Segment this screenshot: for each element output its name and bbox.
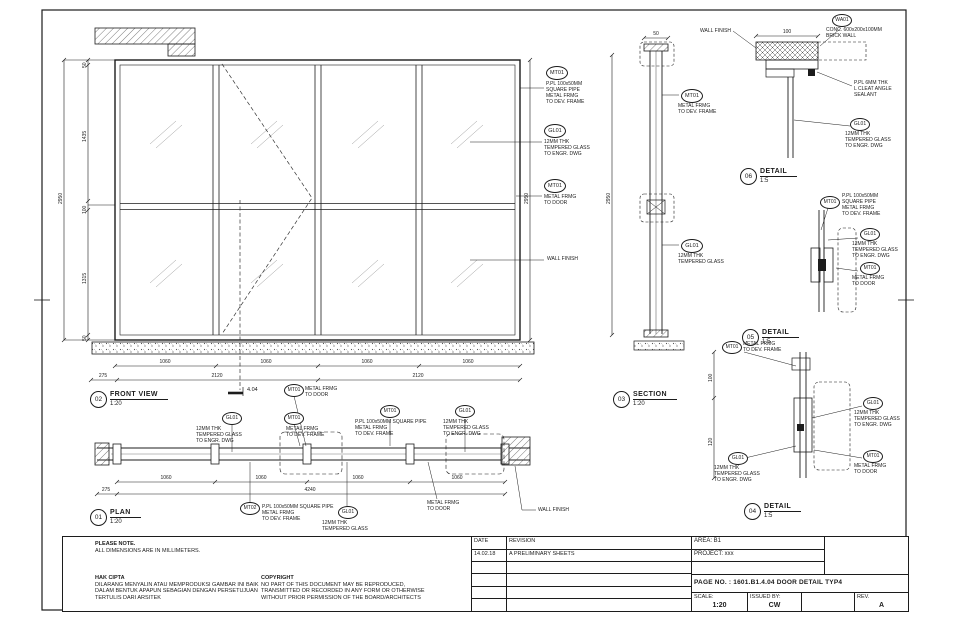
page-number-field: PAGE NO. : 1601.B1.4.04 DOOR DETAIL TYP4 xyxy=(691,574,908,592)
annotation-glass: 12MM THKTEMPERED GLASSTO ENGR. DWG xyxy=(854,410,900,428)
tag-wa01: WA01 xyxy=(832,14,852,27)
view-title-section: 03 SECTION 1:20 xyxy=(613,391,677,408)
view-title-detail05: 05 DETAIL 1:5 xyxy=(742,329,799,346)
revision-row-empty xyxy=(471,586,506,598)
revision-row-empty xyxy=(506,561,691,573)
dim-front-bottom: 1060 xyxy=(462,359,473,365)
tag-gl01: GL01 xyxy=(863,397,883,410)
revision-row-empty xyxy=(506,598,691,611)
annotation-mt01-frame: P.PL 100x50MMSQUARE PIPE METAL FRMGTO DE… xyxy=(842,193,880,217)
rev-field: REV. A xyxy=(854,592,908,611)
dim-plan: 1060 xyxy=(451,475,462,481)
dim-plan: 1060 xyxy=(255,475,266,481)
annotation-metal-frmg: METAL FRMGTO DOOR xyxy=(305,386,337,398)
view-name: SECTION xyxy=(633,391,677,400)
tag-mt02: MT02 xyxy=(240,502,260,515)
tag-mt01: MT01 xyxy=(284,384,304,397)
tag-mt01: MT01 xyxy=(863,450,883,463)
tag-mt01: MT01 xyxy=(544,179,566,193)
project-field: PROJECT: xxx xyxy=(691,549,824,561)
tag-mt01: MT01 xyxy=(860,262,880,275)
revision-value: A PRELIMINARY SHEETS xyxy=(506,549,691,561)
annotation-brick-wall: CONC. 600x200x100MMBRICK WALL xyxy=(826,27,882,39)
revision-row-empty xyxy=(471,598,506,611)
tag-mt01: MT01 xyxy=(380,405,400,418)
dim-front-right: 2950 xyxy=(524,193,530,204)
dim-front-seg: 1315 xyxy=(82,273,88,284)
annotation-wall-finish: WALL FINISH xyxy=(547,256,578,262)
annotation-glass: 12MM THKTEMPERED GLASSTO ENGR. DWG xyxy=(443,419,489,437)
copyright-note: COPYRIGHT NO PART OF THIS DOCUMENT MAY B… xyxy=(261,575,425,601)
annotation-glass: 12MM THKTEMPERED GLASSTO ENGR. DWG xyxy=(845,131,891,149)
view-scale: 1:5 xyxy=(764,513,801,519)
view-title-plan: 01 PLAN 1:20 xyxy=(90,509,141,526)
detail05-linework xyxy=(811,208,858,312)
dim-detail06: 100 xyxy=(783,29,791,35)
section-ref-label: 4.04 xyxy=(247,387,258,393)
annotation-mt01-frame: P.PL 100x50MMSQUARE PIPE METAL FRMGTO DE… xyxy=(546,81,584,105)
tag-gl01: GL01 xyxy=(544,124,566,138)
date-value: 14.02.18 xyxy=(471,549,506,561)
annotation-glass: 12MM THKTEMPERED GLASSTO ENGR. DWG xyxy=(196,426,242,444)
hak-cipta-note: HAK CIPTA DILARANG MENYALIN ATAU MEMPROD… xyxy=(95,575,259,601)
beam-hatch xyxy=(95,28,195,44)
view-scale: 1:20 xyxy=(110,401,168,407)
dim-front-bottom2: 275 xyxy=(99,373,107,379)
view-number: 06 xyxy=(740,168,757,185)
view-number: 04 xyxy=(744,503,761,520)
please-note: PLEASE NOTE. ALL DIMENSIONS ARE IN MILLI… xyxy=(95,541,200,554)
view-title-front-view: 02 FRONT VIEW 1:20 xyxy=(90,391,168,408)
dim-front-overall: 2950 xyxy=(58,193,64,204)
view-number: 01 xyxy=(90,509,107,526)
annotation-cleat: P.PL 6MM THKL CLEAT ANGLESEALANT xyxy=(854,80,892,98)
glass-marks xyxy=(150,121,483,287)
annotation-wall-finish: WALL FINISH xyxy=(538,507,569,513)
drawing-linework xyxy=(0,0,960,621)
view-scale: 1:20 xyxy=(633,401,677,407)
annotation-metal-frmg: METAL FRMGTO DEV. FRAME xyxy=(678,103,716,115)
tag-mt01: MT01 xyxy=(284,412,304,425)
tag-mt01: MT01 xyxy=(546,66,568,80)
section-linework xyxy=(610,36,684,350)
dim-front-seg: 50 xyxy=(82,335,88,341)
dim-front-seg: 1435 xyxy=(82,131,88,142)
dim-section-overall: 2950 xyxy=(606,193,612,204)
dim-plan2: 275 xyxy=(102,487,110,493)
annotation-metal-frmg: METAL FRMGTO DOOR xyxy=(427,500,459,512)
sheet-border xyxy=(34,10,914,610)
issued-by-field: ISSUED BY: CW xyxy=(747,592,801,611)
front-view-linework xyxy=(62,28,544,396)
scale-field: SCALE: 1:20 xyxy=(691,592,747,611)
logo-area xyxy=(824,537,908,574)
dim-front-seg: 50 xyxy=(82,62,88,68)
view-name: DETAIL xyxy=(764,503,801,512)
annotation-glass: 12MM THKTEMPERED GLASS xyxy=(322,520,368,532)
revision-row-empty xyxy=(506,573,691,586)
ground-hatch xyxy=(92,342,534,354)
front-bottom-dims xyxy=(89,364,522,382)
dim-plan2: 4240 xyxy=(304,487,315,493)
view-name: FRONT VIEW xyxy=(110,391,168,400)
tag-gl01: GL01 xyxy=(728,452,748,465)
view-number: 05 xyxy=(742,329,759,346)
tag-gl01: GL01 xyxy=(850,118,870,131)
plan-dims xyxy=(95,480,507,496)
revision-row-empty xyxy=(471,573,506,586)
annotation-metal-frmg: METAL FRMGTO DEV. FRAME xyxy=(286,426,324,438)
front-right-dims xyxy=(470,58,544,342)
revision-row-empty xyxy=(471,561,506,573)
tag-gl01: GL01 xyxy=(860,228,880,241)
view-number: 02 xyxy=(90,391,107,408)
tag-gl01: GL01 xyxy=(222,412,242,425)
annotation-glass: 12MM THKTEMPERED GLASSTO ENGR. DWG xyxy=(852,241,898,259)
tag-mt01: MT01 xyxy=(722,341,742,354)
dim-plan: 1060 xyxy=(352,475,363,481)
empty-field xyxy=(801,592,854,611)
view-scale: 1:5 xyxy=(762,339,799,345)
view-name: PLAN xyxy=(110,509,141,518)
annotation-metal-frmg: METAL FRMGTO DOOR xyxy=(854,463,886,475)
tag-gl01: GL01 xyxy=(338,506,358,519)
dim-detail04: 100 xyxy=(708,374,714,382)
annotation-glass: 12MM THKTEMPERED GLASS xyxy=(678,253,724,265)
annotation-glass: 12MM THKTEMPERED GLASSTO ENGR. DWG xyxy=(544,139,590,157)
area-field: AREA: B1 xyxy=(691,537,824,549)
dim-section-top: 50 xyxy=(653,31,659,37)
annotation-metal-frmg: METAL FRMGTO DOOR xyxy=(544,194,576,206)
view-number: 03 xyxy=(613,391,630,408)
dim-front-bottom: 1060 xyxy=(159,359,170,365)
dim-plan: 1060 xyxy=(160,475,171,481)
front-left-dims xyxy=(62,58,115,342)
dim-front-bottom: 1060 xyxy=(361,359,372,365)
view-title-detail06: 06 DETAIL 1:5 xyxy=(740,168,797,185)
annotation-wall-finish: WALL FINISH xyxy=(700,28,731,34)
dim-detail04: 120 xyxy=(708,438,714,446)
view-scale: 1:5 xyxy=(760,178,797,184)
annotation-glass: 12MM THKTEMPERED GLASSTO ENGR. DWG xyxy=(714,465,760,483)
revision-row-empty xyxy=(506,586,691,598)
view-scale: 1:20 xyxy=(110,519,141,525)
view-name: DETAIL xyxy=(760,168,797,177)
view-name: DETAIL xyxy=(762,329,799,338)
title-block: PLEASE NOTE. ALL DIMENSIONS ARE IN MILLI… xyxy=(62,536,909,612)
annotation-metal-frmg: METAL FRMGTO DOOR xyxy=(852,275,884,287)
empty-field xyxy=(691,561,824,574)
drawing-sheet: MT01 P.PL 100x50MMSQUARE PIPE METAL FRMG… xyxy=(0,0,960,621)
revision-header: REVISION xyxy=(506,537,691,549)
date-header: DATE xyxy=(471,537,506,549)
dim-front-bottom2: 2120 xyxy=(412,373,423,379)
dim-front-seg: 100 xyxy=(82,206,88,214)
tag-mt01: MT01 xyxy=(681,89,703,103)
dim-front-bottom2: 2120 xyxy=(211,373,222,379)
door-swing xyxy=(222,64,312,390)
annotation-mt01-frame: P.PL 100x50MM SQUARE PIPEMETAL FRMGTO DE… xyxy=(355,419,426,437)
view-title-detail04: 04 DETAIL 1:5 xyxy=(744,503,801,520)
tag-gl01: GL01 xyxy=(455,405,475,418)
tag-mt01: MT01 xyxy=(820,196,840,209)
dim-front-bottom: 1060 xyxy=(260,359,271,365)
tag-gl01: GL01 xyxy=(681,239,703,253)
